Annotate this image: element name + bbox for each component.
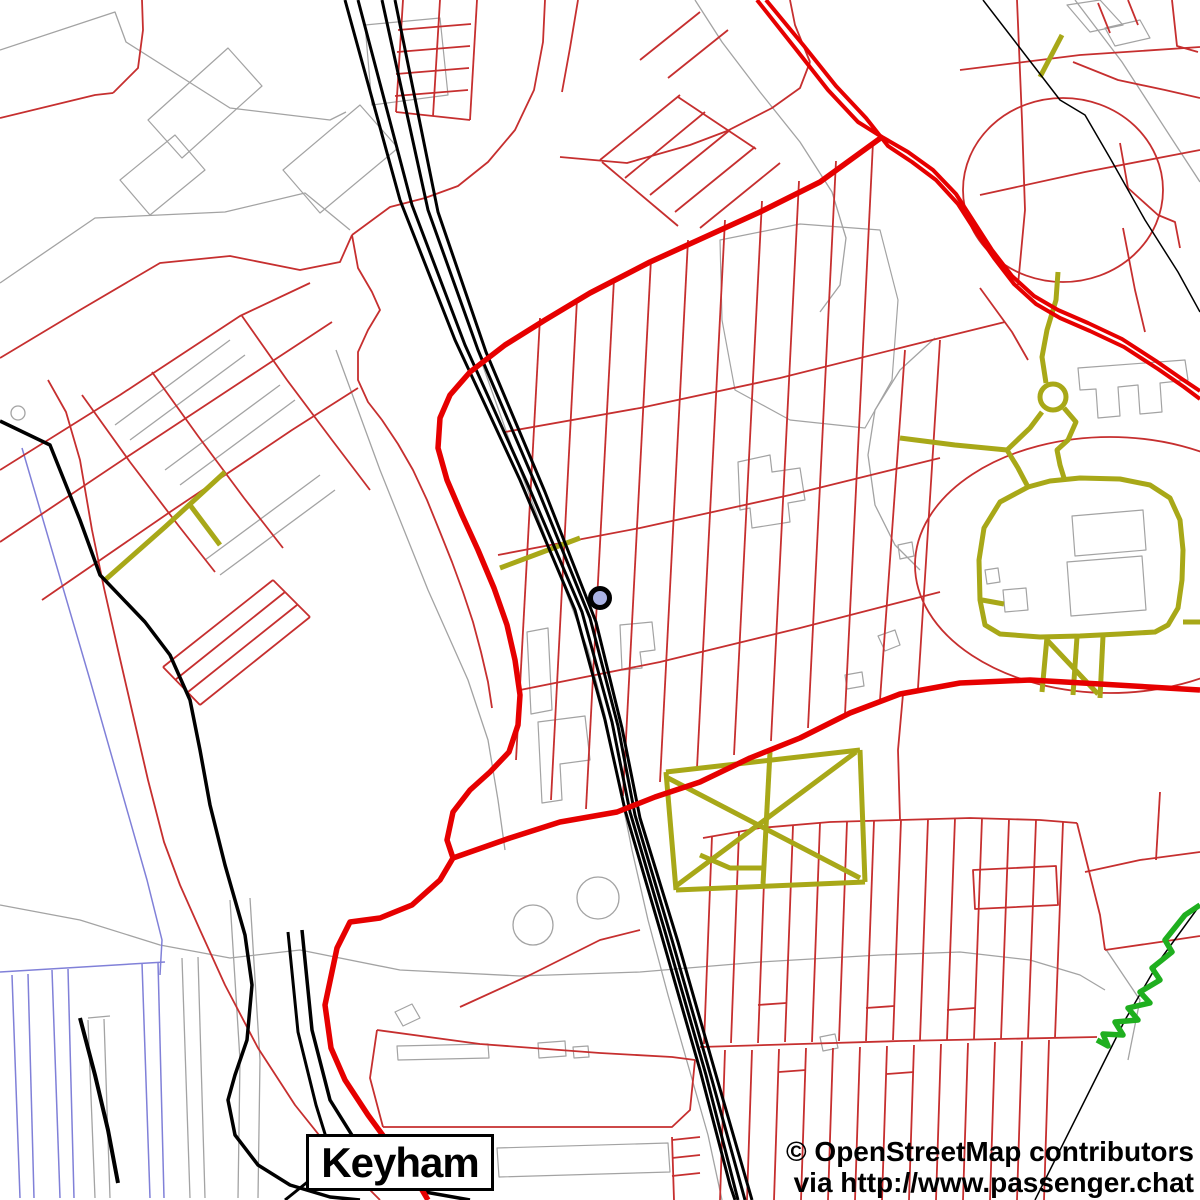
map-feature — [920, 819, 928, 1040]
map-feature — [774, 1049, 779, 1200]
attribution-line-1: © OpenStreetMap contributors — [786, 1136, 1194, 1167]
map-feature — [0, 12, 346, 120]
map-feature — [230, 900, 240, 1198]
map-feature — [182, 958, 190, 1198]
layer-water — [0, 448, 165, 1198]
map-feature — [560, 62, 810, 163]
map-feature — [731, 832, 739, 1043]
map-feature — [198, 957, 205, 1198]
map-feature — [0, 235, 352, 358]
map-feature — [1105, 936, 1200, 950]
map-feature — [625, 112, 705, 178]
layer-buildings — [120, 0, 1188, 1177]
map-feature — [623, 259, 651, 796]
map-feature — [672, 1173, 700, 1176]
map-feature — [205, 475, 320, 560]
map-feature — [974, 818, 982, 1039]
map-feature — [766, 0, 1200, 399]
map-feature — [497, 1143, 670, 1177]
map-feature — [771, 181, 799, 741]
map-feature — [672, 1137, 674, 1200]
map-feature — [115, 340, 230, 425]
map-feature — [120, 135, 205, 215]
map-feature — [602, 162, 678, 226]
map-feature — [1072, 510, 1146, 556]
map-feature — [11, 406, 25, 420]
map-feature — [700, 1037, 1097, 1047]
map-feature — [188, 605, 297, 692]
place-label-text: Keyham — [321, 1139, 478, 1187]
map-feature — [779, 1070, 806, 1072]
map-feature — [0, 93, 113, 118]
map-feature — [1100, 636, 1103, 698]
map-feature — [980, 288, 1028, 360]
map-feature — [383, 1060, 695, 1127]
map-feature — [68, 969, 74, 1198]
map-feature — [1042, 637, 1047, 692]
map-feature — [48, 380, 380, 1200]
map-attribution: © OpenStreetMap contributors via http://… — [786, 1136, 1194, 1198]
map-feature — [720, 224, 898, 428]
map-feature — [980, 150, 1200, 195]
map-feature — [973, 866, 1058, 909]
map-viewport[interactable]: Keyham © OpenStreetMap contributors via … — [0, 0, 1200, 1200]
map-feature — [660, 240, 688, 782]
map-feature — [860, 750, 865, 882]
map-feature — [396, 68, 469, 74]
map-feature — [52, 970, 60, 1198]
map-feature — [345, 0, 735, 1200]
map-feature — [527, 628, 552, 714]
map-feature — [900, 438, 1007, 450]
map-feature — [1017, 0, 1025, 285]
map-feature — [1078, 360, 1188, 418]
map-feature — [640, 12, 700, 60]
map-feature — [898, 694, 903, 820]
map-feature — [758, 1003, 786, 1005]
map-feature — [887, 1072, 914, 1074]
map-feature — [220, 490, 335, 575]
map-feature — [1077, 823, 1105, 950]
map-feature — [1156, 792, 1160, 860]
map-feature — [453, 680, 1200, 858]
map-feature — [1057, 408, 1076, 478]
map-feature — [845, 672, 864, 689]
map-feature — [918, 340, 940, 688]
map-feature — [28, 974, 34, 1198]
map-feature — [148, 48, 262, 158]
map-feature — [80, 1018, 118, 1183]
map-feature — [1007, 450, 1028, 487]
map-feature — [1075, 0, 1200, 182]
map-feature — [672, 1137, 700, 1140]
map-feature — [620, 622, 655, 670]
map-feature — [562, 0, 578, 92]
map-feature — [190, 505, 220, 545]
map-feature — [868, 338, 935, 570]
map-feature — [180, 400, 295, 485]
map-feature — [470, 0, 477, 120]
map-feature — [650, 130, 730, 195]
map-feature — [893, 820, 901, 1040]
attribution-line-2: via http://www.passenger.chat — [786, 1167, 1194, 1198]
map-feature — [395, 90, 468, 96]
map-feature — [695, 0, 846, 312]
map-feature — [1085, 852, 1200, 872]
map-feature — [142, 963, 150, 1198]
map-feature — [397, 1044, 489, 1060]
map-feature — [273, 580, 310, 617]
map-feature — [672, 1155, 700, 1158]
map-feature — [982, 600, 1004, 604]
map-feature — [1172, 0, 1198, 52]
map-feature — [1055, 822, 1063, 1038]
map-feature — [12, 975, 20, 1198]
map-feature — [1007, 412, 1042, 450]
map-feature — [808, 161, 836, 728]
map-feature — [747, 1050, 752, 1200]
map-feature — [947, 1008, 975, 1010]
map-feature — [0, 421, 360, 1200]
map-feature — [668, 30, 728, 78]
map-feature — [0, 905, 1105, 990]
map-feature — [1028, 820, 1036, 1038]
map-feature — [113, 0, 143, 93]
map-feature — [433, 0, 440, 116]
map-feature — [1040, 35, 1062, 77]
location-marker[interactable] — [591, 589, 610, 608]
map-feature — [165, 385, 280, 470]
map-feature — [538, 716, 590, 803]
map-feature — [676, 882, 865, 890]
map-feature — [1067, 556, 1146, 616]
map-feature — [370, 1030, 383, 1127]
map-feature — [586, 279, 614, 809]
map-feature — [395, 0, 752, 1200]
map-feature — [839, 822, 847, 1041]
map-feature — [88, 1016, 110, 1018]
map-feature — [478, 352, 722, 1200]
map-feature — [398, 24, 471, 30]
map-canvas[interactable] — [0, 0, 1200, 1200]
map-feature — [866, 1006, 894, 1008]
map-feature — [600, 95, 680, 160]
map-feature — [513, 905, 553, 945]
map-feature — [700, 855, 762, 868]
place-label: Keyham — [306, 1134, 494, 1191]
layer-paths-olive — [105, 35, 1200, 890]
map-feature — [1001, 819, 1009, 1039]
layer-roads-major — [325, 0, 1200, 1200]
map-feature — [0, 962, 165, 972]
map-feature — [757, 0, 1200, 391]
map-feature — [785, 826, 793, 1042]
map-feature — [985, 568, 1000, 584]
map-feature — [947, 818, 955, 1040]
map-feature — [130, 355, 245, 440]
map-feature — [979, 478, 1183, 637]
map-feature — [242, 316, 370, 490]
map-feature — [763, 752, 770, 884]
map-feature — [283, 105, 398, 213]
map-feature — [1105, 20, 1150, 46]
map-feature — [697, 220, 725, 768]
map-feature — [336, 350, 505, 850]
map-feature — [82, 395, 215, 572]
map-feature — [200, 617, 310, 705]
map-feature — [395, 1004, 420, 1026]
map-feature — [1003, 588, 1028, 612]
map-feature — [1042, 272, 1058, 383]
map-feature — [960, 47, 1200, 70]
map-feature — [460, 930, 640, 1007]
map-feature — [158, 962, 164, 1198]
map-feature — [175, 592, 285, 680]
map-feature — [577, 877, 619, 919]
map-feature — [1073, 62, 1200, 98]
map-feature — [1123, 228, 1145, 332]
map-feature — [675, 147, 755, 212]
map-feature — [1040, 384, 1066, 410]
map-feature — [163, 580, 273, 667]
map-feature — [878, 630, 900, 651]
map-feature — [397, 46, 470, 52]
